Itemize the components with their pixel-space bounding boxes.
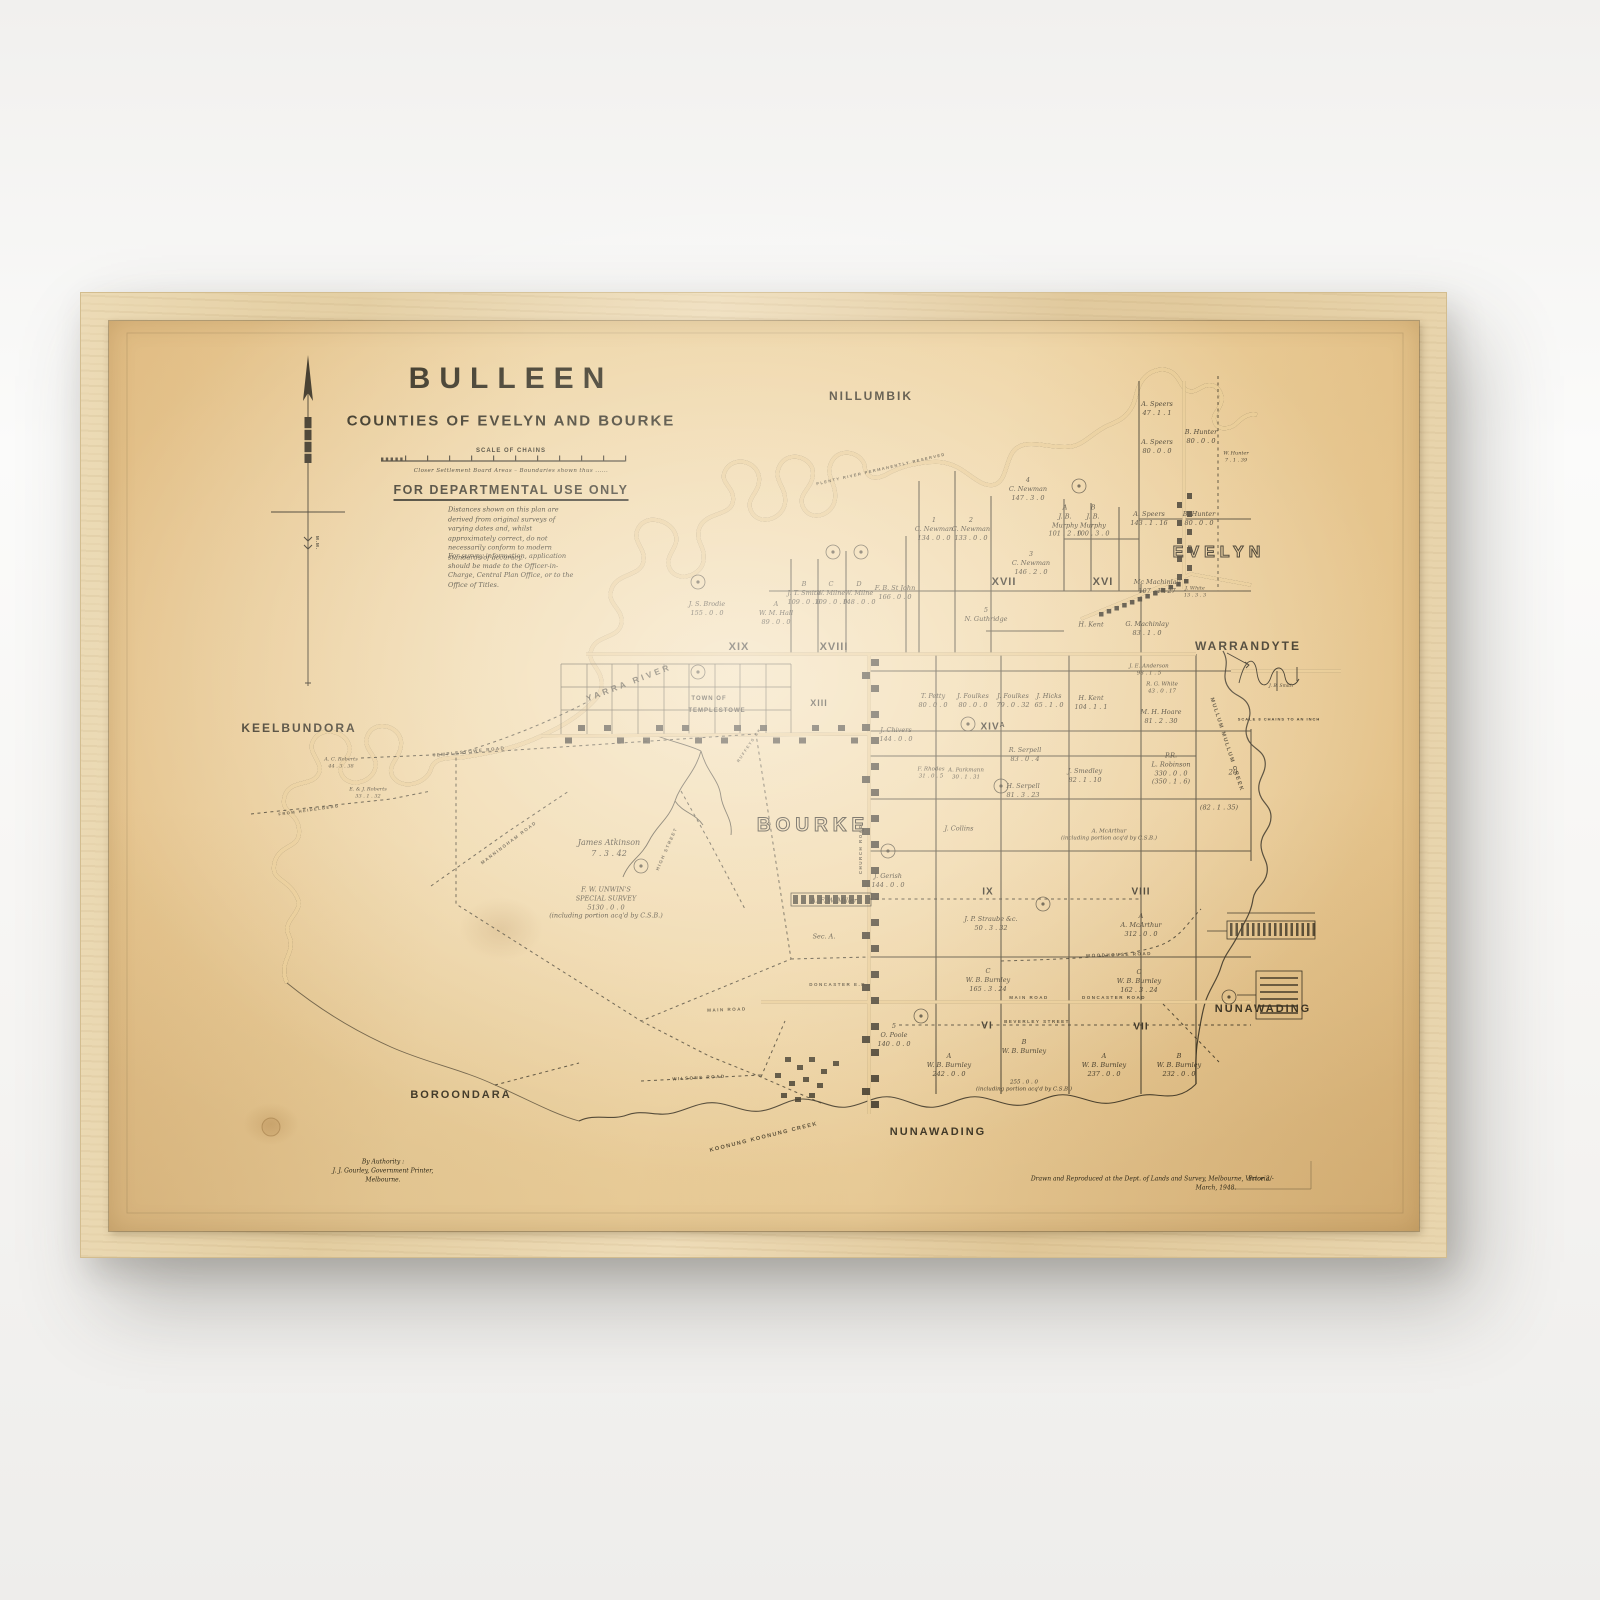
road-label: MAIN ROAD bbox=[707, 1006, 747, 1013]
river-yarra bbox=[274, 370, 1257, 983]
parcel-label: E. & J. Roberts 33 . 1 . 32 bbox=[349, 786, 387, 800]
departmental-note: FOR DEPARTMENTAL USE ONLY bbox=[394, 483, 629, 501]
section-label: VII bbox=[1133, 1021, 1148, 1034]
parcel-label: J. Chivers 144 . 0 . 0 bbox=[879, 726, 912, 744]
section-label: XIVᴬ bbox=[981, 721, 1006, 734]
section-label: XVI bbox=[1093, 575, 1114, 589]
section-label: VI bbox=[981, 1020, 992, 1033]
parcel-label: 5 N. Guthridge bbox=[965, 606, 1008, 624]
road-label: RUFFEYS CK bbox=[736, 727, 763, 764]
section-label: VIII bbox=[1131, 886, 1150, 899]
road-label: DONCASTER ROAD bbox=[1082, 995, 1146, 1001]
north-arrow bbox=[271, 355, 345, 686]
parcel-label: 4 C. Newman 147 . 3 . 0 bbox=[1009, 476, 1047, 502]
corner-mark bbox=[1231, 1161, 1311, 1189]
drawn-credit: Drawn and Reproduced at the Dept. of Lan… bbox=[1031, 1175, 1271, 1184]
parcel-label: H. Kent bbox=[1078, 621, 1103, 630]
disclaimer-2: For survey information, application shou… bbox=[448, 552, 574, 590]
lot-ticks bbox=[381, 456, 1315, 1109]
parcel-label: A J. B. Murphy 101 . 2 . 0 bbox=[1048, 503, 1081, 538]
parcel-label: 20 bbox=[1229, 768, 1238, 777]
parcel-label: B J. B. Murphy 100 . 3 . 0 bbox=[1076, 503, 1109, 538]
road-label: HIGH STREET bbox=[655, 826, 679, 871]
road-label: MAIN ROAD bbox=[1009, 995, 1049, 1001]
region-label: WARRANDYTE bbox=[1195, 639, 1301, 655]
parcel-label: J. Hicks 65 . 1 . 0 bbox=[1035, 692, 1064, 710]
section-label: IX bbox=[982, 886, 993, 899]
parcel-label: J. P. Straube &c. 50 . 3 . 32 bbox=[964, 915, 1017, 933]
map-paper: BOURKE EVELYN BULLEEN COUNTIES OF EVELYN… bbox=[109, 321, 1419, 1231]
parcel-label: T. Petty 80 . 0 . 0 bbox=[919, 692, 948, 710]
region-label: NUNAWADING bbox=[1215, 1002, 1311, 1016]
creeks-bourke bbox=[623, 735, 731, 877]
road-label: WILSONS ROAD bbox=[672, 1074, 726, 1083]
parcel-label: C W. Milne 109 . 0 . 0 bbox=[814, 580, 847, 606]
miller-strip bbox=[791, 893, 871, 906]
parcel-label: J. Foulkes 79 . 0 . 32 bbox=[996, 692, 1029, 710]
section-label: XVIII bbox=[820, 640, 849, 654]
parcel-label: F. B. St John 166 . 0 . 0 bbox=[875, 584, 916, 602]
price-credit: Price 2/- bbox=[1248, 1175, 1274, 1184]
margin-inset-box bbox=[1237, 971, 1302, 1019]
parcel-label: G. Machinlay 83 . 1 . 0 bbox=[1125, 620, 1168, 638]
parcel-label: A W. B. Burnley 242 . 0 . 0 bbox=[927, 1052, 971, 1078]
parcel-label: A. Speers 47 . 1 . 1 bbox=[1141, 400, 1173, 418]
parcel-label: (82 . 1 . 35) bbox=[1200, 804, 1238, 813]
parcel-label: A W. B. Burnley 237 . 0 . 0 bbox=[1082, 1052, 1126, 1078]
parcel-label: J. White 13 . 3 . 3 bbox=[1184, 585, 1206, 599]
parcel-label: 1 C. Newman 134 . 0 . 0 bbox=[915, 516, 953, 542]
micro-label: TEMPLESTOWE bbox=[688, 708, 745, 716]
road-label: CHURCH ROAD bbox=[858, 824, 864, 875]
region-label-bourke-outline: BOURKE bbox=[757, 815, 869, 836]
region-label: NUNAWADING bbox=[890, 1125, 986, 1139]
disclaimer-1: Distances shown on this plan are derived… bbox=[448, 505, 574, 562]
roads-double bbox=[541, 381, 1341, 1114]
parcel-label: R. Serpell 83 . 0 . 4 bbox=[1009, 746, 1042, 764]
scale-heading: SCALE OF CHAINS bbox=[476, 448, 546, 454]
region-label: KEELBUNDORA bbox=[241, 721, 356, 737]
parcel-label: B W. B. Burnley 232 . 0 . 0 bbox=[1157, 1052, 1201, 1078]
margin-inset-strip bbox=[1207, 913, 1315, 939]
road-label: MULLUM MULLUM CREEK bbox=[1207, 697, 1244, 793]
road-label: TEMPLESTOWE ROAD bbox=[432, 745, 505, 758]
authority-credit: By Authority : J. J. Gourley, Government… bbox=[333, 1158, 434, 1185]
scale-note: Closer Settlement Board Areas – Boundari… bbox=[414, 468, 608, 474]
road-label: BEVERLEY STREET bbox=[1004, 1019, 1070, 1025]
creek-koonung bbox=[579, 1084, 1196, 1121]
parcel-label: C W. B. Burnley 165 . 3 . 24 bbox=[966, 967, 1010, 993]
parcel-label: 2 C. Newman 133 . 0 . 0 bbox=[952, 516, 990, 542]
warrandyte-inset bbox=[1227, 653, 1299, 691]
parcel-label: P.R. L. Robinson 330 . 0 . 0 (350 . 1 . … bbox=[1151, 751, 1190, 786]
parcel-label: B. Hunter 80 . 0 . 0 bbox=[1185, 428, 1218, 446]
section-label: XVII bbox=[992, 575, 1017, 589]
parcel-label: R. G. White 43 . 0 . 17 bbox=[1146, 682, 1178, 697]
picture-frame: BOURKE EVELYN BULLEEN COUNTIES OF EVELYN… bbox=[80, 292, 1447, 1258]
parcel-label: J. Smedley 82 . 1 . 10 bbox=[1068, 767, 1102, 785]
parcel-label: A. Parkmann 30 . 1 . 31 bbox=[948, 768, 984, 783]
micro-label: TOWN OF bbox=[691, 696, 726, 704]
road-label: PLENTY RIVER PERMANENTLY RESERVED bbox=[816, 452, 946, 487]
sheet-border bbox=[127, 333, 1403, 1213]
roads-dotted bbox=[251, 376, 1251, 1103]
parcel-label: H. Kent 104 . 1 . 1 bbox=[1074, 694, 1107, 712]
wall-background: BOURKE EVELYN BULLEEN COUNTIES OF EVELYN… bbox=[0, 0, 1600, 1600]
parcel-label: Mc Machinlay 107 . 1 . 27 bbox=[1134, 578, 1181, 596]
map-linework: BOURKE EVELYN bbox=[109, 321, 1419, 1231]
region-label: BOROONDARA bbox=[410, 1088, 511, 1102]
road-label: DONCASTER E.R. bbox=[809, 982, 869, 988]
creek-mullum-mullum bbox=[1196, 651, 1271, 1084]
parcel-label: M. H. Hoare 81 . 2 . 30 bbox=[1141, 708, 1182, 726]
parcel-label: B W. B. Burnley bbox=[1002, 1038, 1046, 1056]
parcel-label: A A. McArthur 312 . 0 . 0 bbox=[1120, 912, 1161, 938]
parcel-label: J. E. Anderson 98 . 1 . 5 bbox=[1129, 664, 1168, 679]
parcel-label: H. Serpell 81 . 3 . 23 bbox=[1006, 782, 1039, 800]
parcel-label: A. Speers 80 . 0 . 0 bbox=[1141, 438, 1173, 456]
parcel-label: J. S. Brodie 155 . 0 . 0 bbox=[689, 600, 725, 618]
road-label: FROM HEIDELBERG bbox=[278, 803, 340, 817]
parcel-label: J. B. Smith bbox=[1269, 684, 1293, 690]
road-label: YARRA RIVER bbox=[585, 662, 673, 705]
parcel-label: W. Hunter 7 . 1 . 39 bbox=[1223, 450, 1249, 464]
section-label: XIII bbox=[810, 698, 828, 710]
section-label: XIX bbox=[729, 640, 750, 654]
region-label-evelyn-outline: EVELYN bbox=[1173, 544, 1266, 561]
templestowe-town-grid bbox=[561, 664, 791, 734]
parcel-label: 3 C. Newman 146 . 2 . 0 bbox=[1012, 550, 1050, 576]
road-label: KOONUNG KOONUNG CREEK bbox=[709, 1121, 819, 1155]
map-subtitle: COUNTIES OF EVELYN AND BOURKE bbox=[347, 413, 676, 430]
parcel-label: B J. T. Smith 109 . 0 . 0 bbox=[787, 580, 820, 606]
date-credit: March, 1948. bbox=[1196, 1184, 1237, 1193]
parcel-label: J. Foulkes 80 . 0 . 0 bbox=[957, 692, 989, 710]
stain-ring bbox=[262, 1118, 280, 1136]
parcel-grid bbox=[769, 381, 1251, 1094]
region-label: NILLUMBIK bbox=[829, 389, 913, 405]
parcel-label: F. W. UNWIN'S SPECIAL SURVEY 5130 . 0 . … bbox=[549, 885, 662, 920]
survey-circles bbox=[634, 479, 1236, 1023]
parcel-label: C W. B. Burnley 162 . 3 . 24 bbox=[1117, 968, 1161, 994]
road-label: MANNINGHAM ROAD bbox=[480, 820, 538, 866]
parcel-label: A. Speers 143 . 1 . 16 bbox=[1130, 510, 1167, 528]
map-title: BULLEEN bbox=[409, 362, 614, 396]
map-labels-layer: NILLUMBIKWARRANDYTEKEELBUNDORABOROONDARA… bbox=[109, 321, 1419, 1231]
parcel-label: 255 . 0 . 0 (including portion acq'd by … bbox=[976, 1080, 1072, 1095]
parish-boundary-southwest bbox=[287, 983, 579, 1121]
parcel-label: F. Rhodes 31 . 0 . 5 bbox=[917, 767, 944, 782]
parcel-label: A. McArthur (including portion acq'd by … bbox=[1061, 829, 1157, 844]
parcel-label: D W. Milne 148 . 0 . 0 bbox=[842, 580, 875, 606]
micro-label: M.M. bbox=[314, 536, 320, 550]
parcel-label: B. Hunter 80 . 0 . 0 bbox=[1183, 510, 1216, 528]
parcel-label: Sec. A. bbox=[813, 933, 836, 942]
parcel-label: J. Gerish 144 . 0 . 0 bbox=[871, 872, 904, 890]
parcel-label: J. Collins bbox=[945, 825, 974, 834]
road-label: WOODHOUSE ROAD bbox=[1086, 951, 1152, 959]
parcel-label: James Atkinson 7 . 3 . 42 bbox=[578, 838, 640, 860]
parcel-label: A. C. Roberts 44 . 3 . 38 bbox=[324, 756, 358, 770]
parcel-label: 5 O. Poole 140 . 0 . 0 bbox=[877, 1022, 910, 1048]
parcel-label: A. F. W. Miller bbox=[811, 897, 857, 906]
parcel-label: A W. M. Hall 89 . 0 . 0 bbox=[759, 600, 793, 626]
micro-label: SCALE 8 CHAINS TO AN INCH bbox=[1238, 716, 1321, 721]
